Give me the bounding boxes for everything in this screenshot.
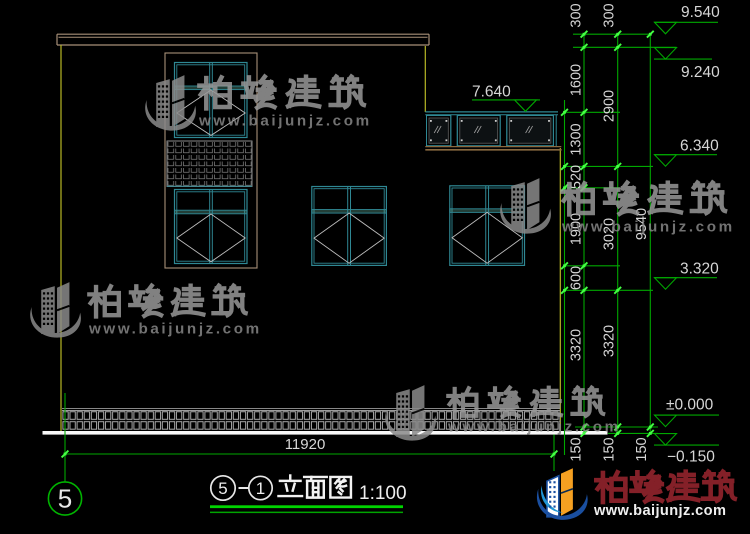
- svg-text:9.540: 9.540: [681, 4, 720, 21]
- svg-text:www.baijunjz.com: www.baijunjz.com: [561, 219, 735, 236]
- svg-text:±0.000: ±0.000: [666, 397, 714, 414]
- svg-text:1600: 1600: [569, 64, 585, 96]
- svg-text:9.240: 9.240: [681, 64, 720, 81]
- svg-text:www.baijunjz.com: www.baijunjz.com: [198, 113, 372, 130]
- svg-text:1300: 1300: [569, 123, 585, 155]
- svg-text:3320: 3320: [569, 329, 585, 361]
- svg-text:www.baijunjz.com: www.baijunjz.com: [88, 321, 262, 338]
- svg-text:6.340: 6.340: [680, 138, 719, 155]
- svg-text:300: 300: [602, 3, 618, 27]
- svg-text:150: 150: [634, 437, 650, 461]
- svg-text:600: 600: [569, 266, 585, 290]
- svg-text:www.baijunjz.com: www.baijunjz.com: [447, 419, 621, 436]
- svg-text:−0.150: −0.150: [667, 449, 715, 466]
- svg-text:www.baijunjz.com: www.baijunjz.com: [593, 503, 726, 519]
- svg-text:1: 1: [256, 479, 265, 498]
- svg-text:11920: 11920: [285, 436, 326, 453]
- svg-text:2900: 2900: [602, 90, 618, 122]
- svg-text:3.320: 3.320: [680, 261, 719, 278]
- svg-text:150: 150: [569, 437, 585, 461]
- svg-text:5: 5: [218, 479, 227, 498]
- svg-text:7.640: 7.640: [472, 84, 511, 101]
- svg-text:300: 300: [569, 3, 585, 27]
- svg-text:5: 5: [58, 484, 72, 514]
- svg-text:150: 150: [602, 437, 618, 461]
- svg-text:3320: 3320: [602, 325, 618, 357]
- svg-text:1:100: 1:100: [359, 483, 407, 504]
